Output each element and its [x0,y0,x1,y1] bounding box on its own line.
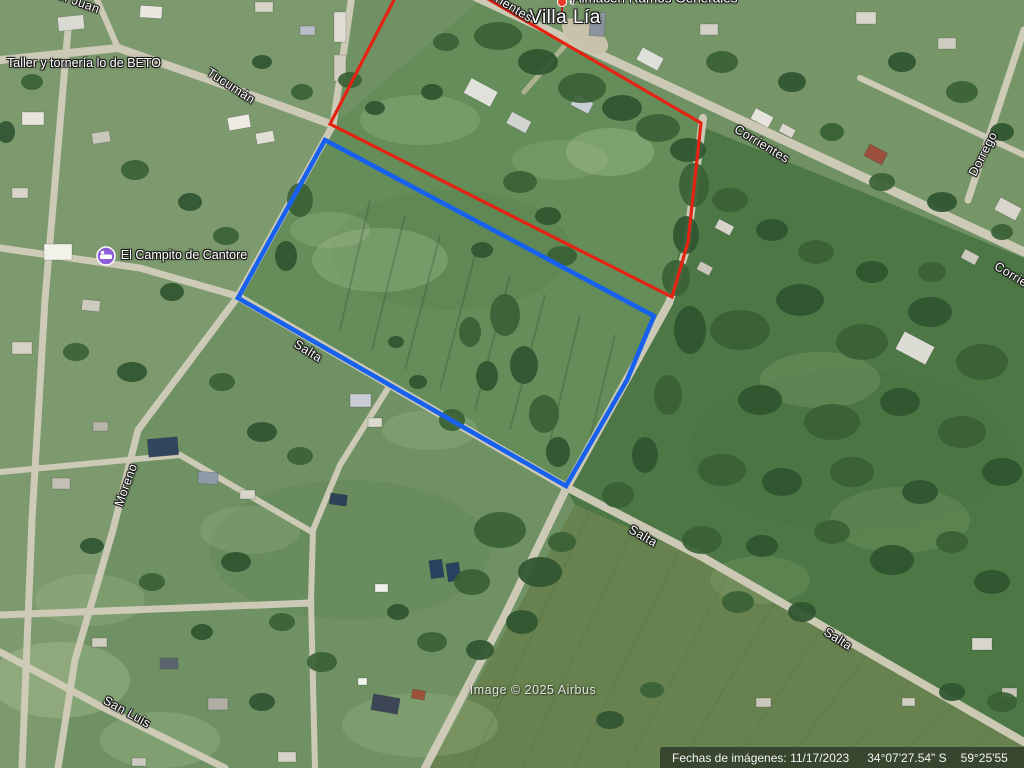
poi-label-campito[interactable]: El Campito de Cantore [121,248,247,262]
imagery-attribution: Image © 2025 Airbus [470,683,596,697]
lodging-icon[interactable] [97,247,115,265]
satellite-imagery [0,0,1024,768]
status-bar: Fechas de imágenes: 11/17/2023 34°07'27.… [660,747,1024,768]
map-canvas[interactable]: Almacén Ramos Generales Villa Lía Taller… [0,0,1024,768]
poi-label-taller[interactable]: Taller y tornería lo de BETO [7,56,161,70]
poi-label-almacen[interactable]: Almacén Ramos Generales [572,0,737,6]
longitude-value: 59°25'55 [961,751,1008,765]
imagery-date-label: Fechas de imágenes: 11/17/2023 [672,751,849,765]
latitude-value: 34°07'27.54" S [867,751,946,765]
town-label-villa-lia: Villa Lía [529,7,601,29]
